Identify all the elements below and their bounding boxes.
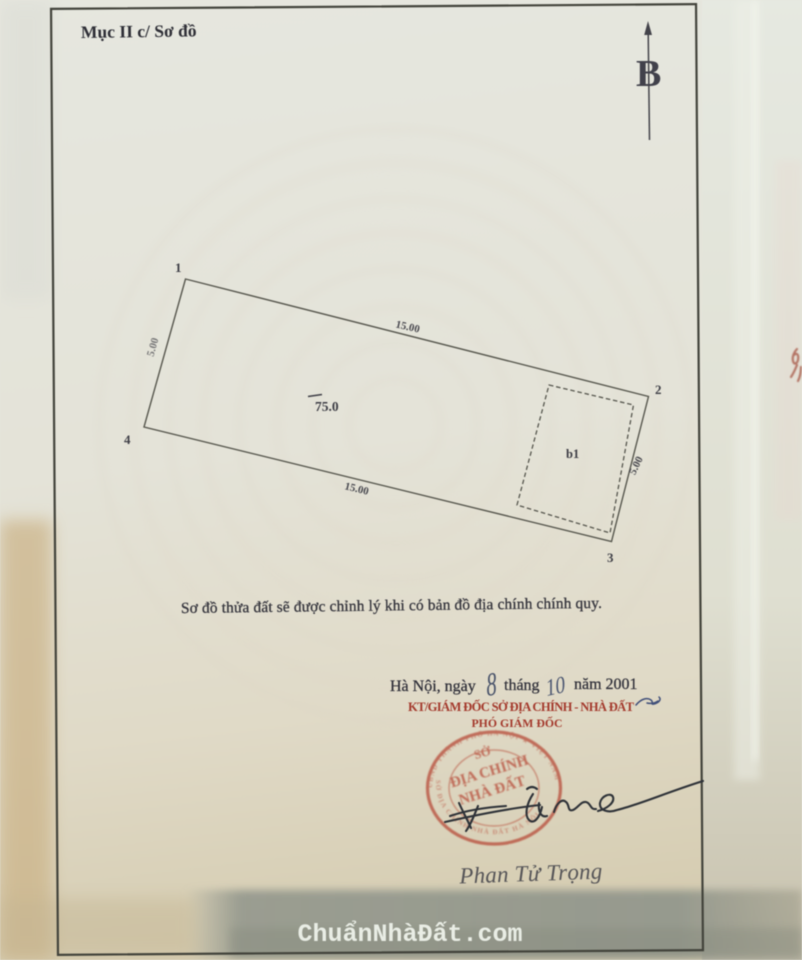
svg-text:tháng: tháng [504,677,540,694]
svg-text:3: 3 [607,550,614,565]
svg-text:75.0: 75.0 [315,399,339,414]
svg-text:Mục II c/ Sơ đồ: Mục II c/ Sơ đồ [81,20,197,42]
svg-text:PHÓ GIÁM ĐỐC: PHÓ GIÁM ĐỐC [471,715,562,730]
svg-text:2: 2 [655,382,662,397]
svg-text:b1: b1 [566,447,579,461]
svg-text:10: 10 [544,671,567,701]
svg-text:1: 1 [175,260,182,275]
svg-text:4: 4 [124,432,131,447]
svg-text:B: B [636,53,661,95]
svg-text:năm 2001: năm 2001 [574,676,638,693]
svg-text:Phan Tử Trọng: Phan Tử Trọng [458,859,603,889]
svg-text:ChuẩnNhàĐất.com: ChuẩnNhàĐất.com [297,920,522,949]
svg-text:KT/GIÁM ĐỐC SỞ ĐỊA CHÍNH - NHÀ: KT/GIÁM ĐỐC SỞ ĐỊA CHÍNH - NHÀ ĐẤT [408,699,635,714]
svg-text:Hà Nội, ngày: Hà Nội, ngày [390,678,476,695]
